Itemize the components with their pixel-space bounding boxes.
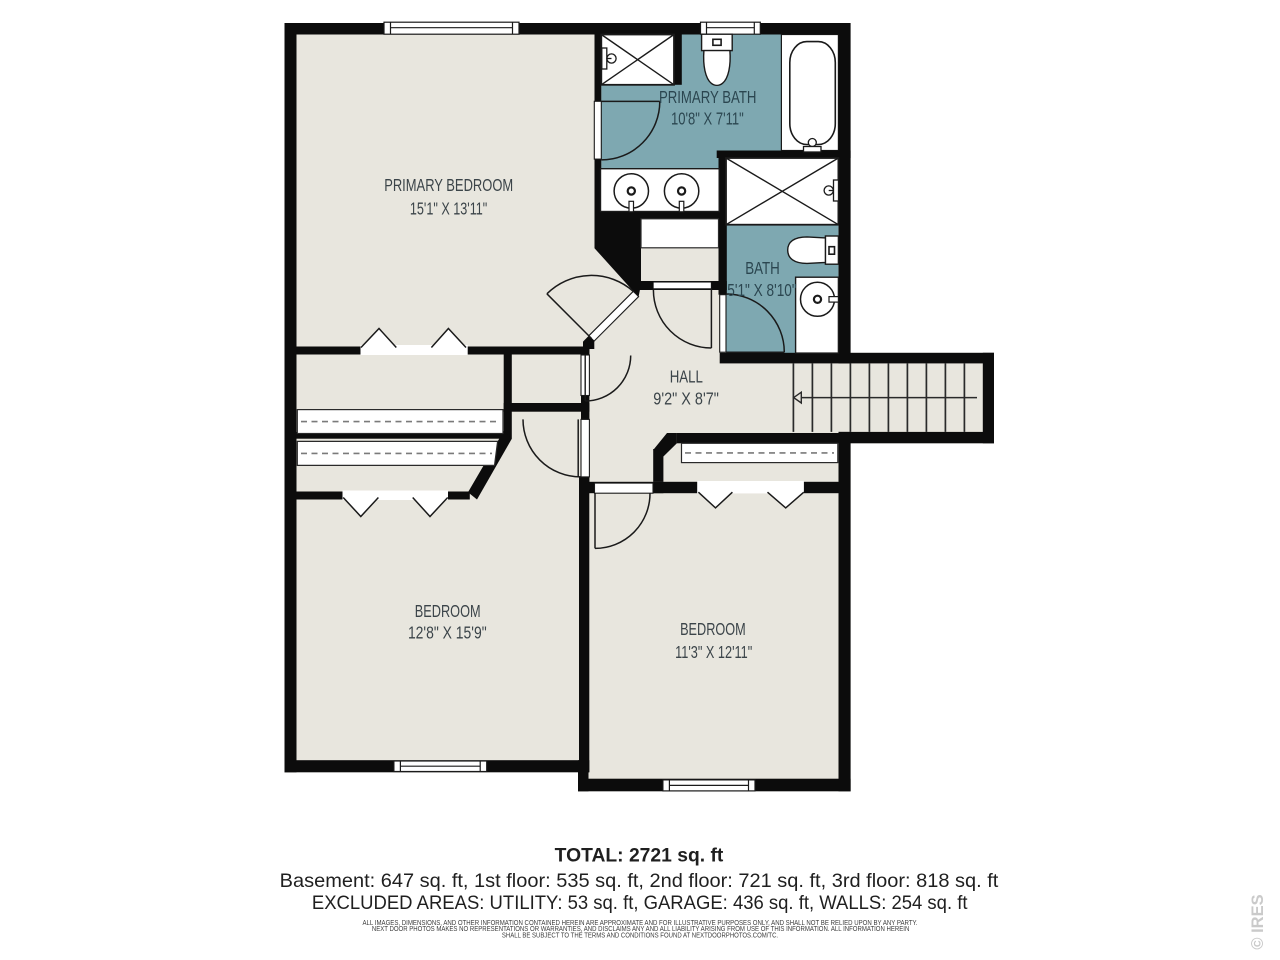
svg-text:PRIMARY BEDROOM: PRIMARY BEDROOM [384, 175, 513, 195]
svg-text:5'1" X 8'10": 5'1" X 8'10" [727, 280, 796, 300]
svg-text:9'2" X 8'7": 9'2" X 8'7" [653, 389, 719, 409]
svg-text:Basement: 647 sq. ft, 1st floo: Basement: 647 sq. ft, 1st floor: 535 sq.… [280, 870, 999, 892]
svg-text:HALL: HALL [670, 366, 703, 386]
svg-text:12'8" X 15'9": 12'8" X 15'9" [408, 623, 487, 643]
svg-text:BEDROOM: BEDROOM [415, 601, 481, 621]
svg-text:10'8" X 7'11": 10'8" X 7'11" [671, 109, 744, 129]
svg-text:© IRES: © IRES [1249, 894, 1267, 949]
svg-text:EXCLUDED AREAS: UTILITY: 53 sq: EXCLUDED AREAS: UTILITY: 53 sq. ft, GARA… [312, 892, 968, 914]
svg-text:BEDROOM: BEDROOM [680, 619, 746, 639]
svg-text:SHALL BE SUBJECT TO THE TERMS: SHALL BE SUBJECT TO THE TERMS AND CONDIT… [502, 930, 778, 939]
svg-text:BATH: BATH [745, 258, 780, 278]
svg-text:15'1" X 13'11": 15'1" X 13'11" [410, 198, 487, 218]
svg-text:TOTAL: 2721 sq. ft: TOTAL: 2721 sq. ft [555, 845, 724, 867]
svg-text:11'3" X 12'11": 11'3" X 12'11" [675, 642, 752, 662]
svg-text:PRIMARY BATH: PRIMARY BATH [659, 87, 757, 107]
